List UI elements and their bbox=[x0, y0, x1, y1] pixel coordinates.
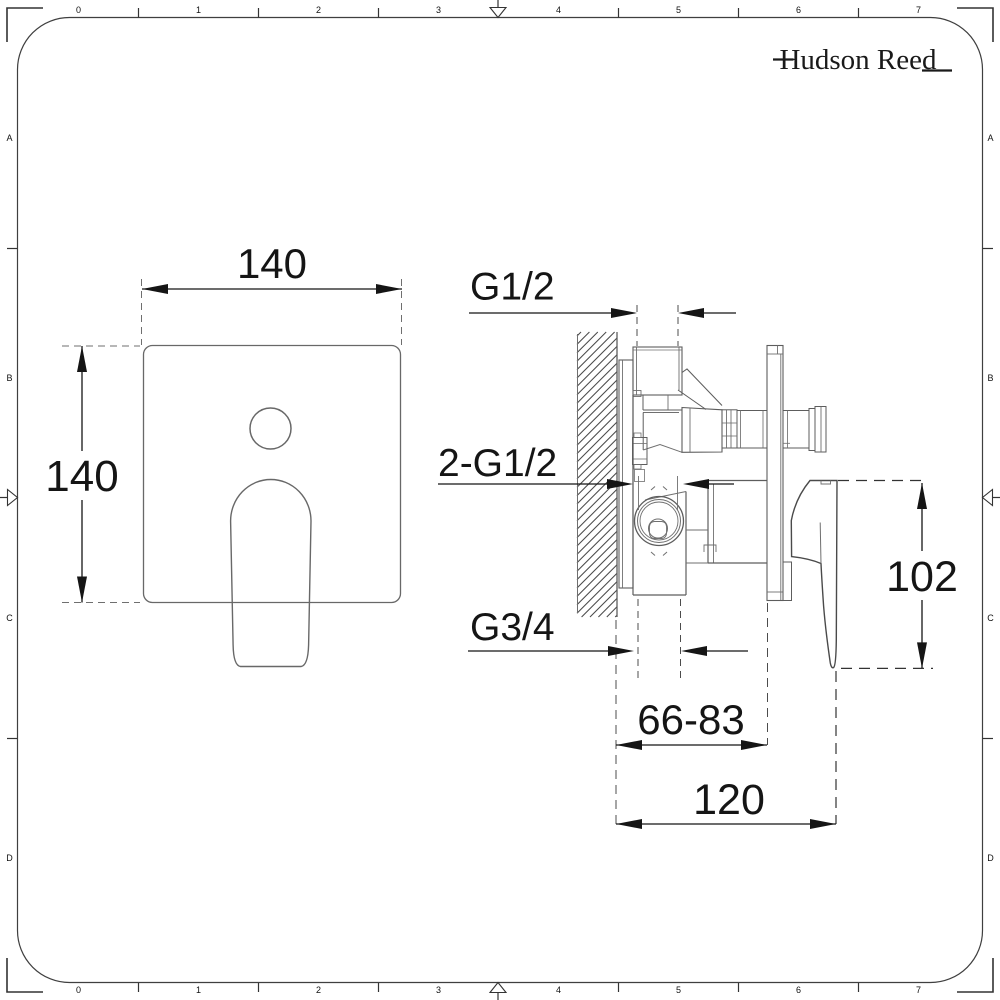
svg-text:1: 1 bbox=[196, 985, 201, 995]
svg-text:G1/2: G1/2 bbox=[470, 266, 555, 309]
svg-text:G3/4: G3/4 bbox=[470, 606, 555, 649]
svg-text:3: 3 bbox=[436, 5, 441, 15]
svg-text:6: 6 bbox=[796, 5, 801, 15]
svg-text:4: 4 bbox=[556, 5, 561, 15]
svg-text:D: D bbox=[987, 853, 994, 863]
svg-text:2: 2 bbox=[316, 985, 321, 995]
svg-text:D: D bbox=[6, 853, 13, 863]
svg-text:Hudson Reed: Hudson Reed bbox=[779, 44, 937, 76]
svg-text:0: 0 bbox=[76, 5, 81, 15]
svg-text:C: C bbox=[6, 613, 13, 623]
svg-text:140: 140 bbox=[45, 452, 118, 501]
svg-text:5: 5 bbox=[676, 985, 681, 995]
svg-text:102: 102 bbox=[886, 553, 958, 601]
svg-text:140: 140 bbox=[237, 240, 307, 287]
svg-text:66-83: 66-83 bbox=[637, 696, 744, 743]
svg-text:B: B bbox=[6, 373, 12, 383]
svg-text:B: B bbox=[987, 373, 993, 383]
svg-text:3: 3 bbox=[436, 985, 441, 995]
svg-text:2-G1/2: 2-G1/2 bbox=[438, 442, 557, 485]
svg-text:5: 5 bbox=[676, 5, 681, 15]
svg-text:A: A bbox=[6, 133, 12, 143]
svg-text:C: C bbox=[987, 613, 994, 623]
svg-text:2: 2 bbox=[316, 5, 321, 15]
svg-text:6: 6 bbox=[796, 985, 801, 995]
svg-text:A: A bbox=[987, 133, 993, 143]
svg-text:7: 7 bbox=[916, 5, 921, 15]
svg-text:1: 1 bbox=[196, 5, 201, 15]
svg-text:4: 4 bbox=[556, 985, 561, 995]
svg-text:7: 7 bbox=[916, 985, 921, 995]
svg-text:120: 120 bbox=[693, 776, 765, 824]
svg-text:0: 0 bbox=[76, 985, 81, 995]
